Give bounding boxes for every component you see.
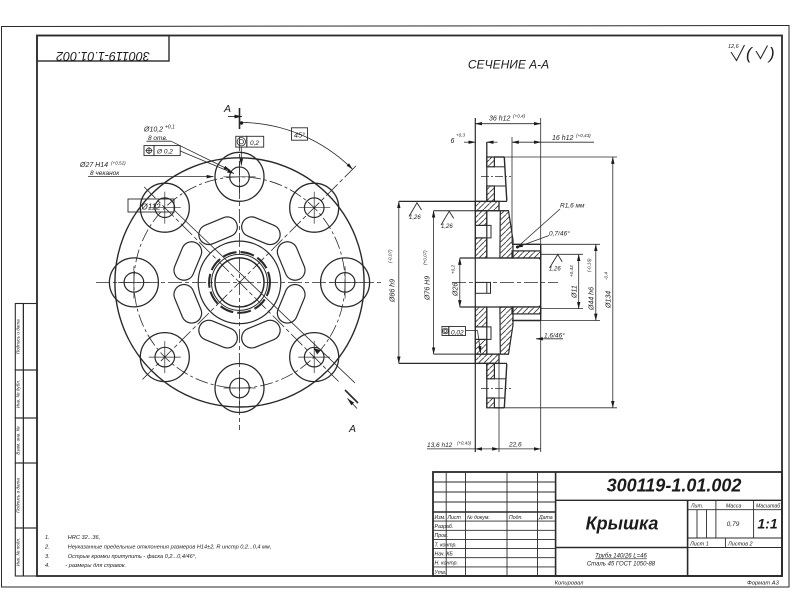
svg-text:Масштаб: Масштаб bbox=[756, 504, 781, 510]
svg-text:Формат А3: Формат А3 bbox=[747, 581, 779, 587]
svg-text:Ø26: Ø26 bbox=[453, 283, 460, 297]
svg-text:Острые кромки притупить - фаск: Острые кромки притупить - фаска 0,2...0,… bbox=[68, 554, 197, 560]
svg-text:300119-1.01.002: 300119-1.01.002 bbox=[56, 49, 150, 63]
svg-text:Подп.: Подп. bbox=[509, 515, 523, 521]
svg-text:Лист: Лист bbox=[447, 515, 462, 521]
svg-text:№ докум.: № докум. bbox=[467, 515, 490, 521]
svg-text:(+0,43): (+0,43) bbox=[457, 441, 472, 446]
svg-text:Лит.: Лит. bbox=[690, 504, 703, 510]
svg-text:Ø86 h9: Ø86 h9 bbox=[390, 279, 397, 303]
svg-text:13,6 h12: 13,6 h12 bbox=[427, 442, 453, 449]
svg-text:Ø76 Н9: Ø76 Н9 bbox=[425, 276, 432, 301]
svg-text:Дата: Дата bbox=[538, 515, 553, 521]
svg-text:1,6/46°: 1,6/46° bbox=[544, 332, 565, 340]
svg-text:0,02: 0,02 bbox=[451, 329, 464, 336]
svg-text:+0,3: +0,3 bbox=[456, 133, 466, 138]
svg-text:1,26: 1,26 bbox=[441, 224, 453, 230]
svg-text:2.: 2. bbox=[44, 545, 50, 551]
svg-text:22,6: 22,6 bbox=[508, 442, 522, 449]
svg-text:(+0,4): (+0,4) bbox=[513, 114, 526, 119]
svg-text:+0,2: +0,2 bbox=[451, 264, 456, 274]
svg-text:Листов 2: Листов 2 bbox=[727, 541, 753, 547]
svg-text:Подпись и дата: Подпись и дата bbox=[16, 478, 21, 513]
svg-text:Масса: Масса bbox=[726, 504, 741, 510]
svg-text:Ø112: Ø112 bbox=[141, 203, 162, 212]
svg-text:-0,4: -0,4 bbox=[604, 272, 609, 280]
svg-text:6: 6 bbox=[451, 138, 455, 145]
svg-text:Ø27 Н14: Ø27 Н14 bbox=[79, 162, 108, 169]
svg-text:Изм.: Изм. bbox=[435, 515, 446, 521]
svg-text:1:1: 1:1 bbox=[757, 516, 777, 532]
svg-text:Сталь 45 ГОСТ 1050-88: Сталь 45 ГОСТ 1050-88 bbox=[587, 562, 656, 568]
svg-text:Инв. № дубл.: Инв. № дубл. bbox=[16, 380, 21, 408]
svg-text:Н. контр.: Н. контр. bbox=[435, 561, 458, 567]
svg-text:0,7/46°: 0,7/46° bbox=[549, 230, 570, 238]
svg-text:(-0,07): (-0,07) bbox=[388, 249, 393, 263]
svg-text:(+0,43): (+0,43) bbox=[576, 133, 591, 138]
svg-text:НRС 32...36,: НRС 32...36, bbox=[68, 535, 100, 541]
svg-text:Ø134: Ø134 bbox=[606, 291, 613, 309]
svg-text:Ø11: Ø11 bbox=[572, 285, 579, 299]
svg-text:Ø10,2: Ø10,2 bbox=[143, 127, 163, 134]
svg-text:Ø44 h6: Ø44 h6 bbox=[589, 287, 596, 311]
svg-text:1,26: 1,26 bbox=[409, 215, 421, 221]
svg-text:Копировал: Копировал bbox=[555, 581, 585, 587]
svg-text:+0,43: +0,43 bbox=[569, 265, 574, 277]
svg-text:Крышка: Крышка bbox=[586, 514, 659, 534]
svg-text:36 h12: 36 h12 bbox=[489, 116, 511, 123]
svg-text:45°: 45° bbox=[294, 131, 305, 140]
svg-text:Труба 140/26 L=46: Труба 140/26 L=46 bbox=[595, 554, 647, 560]
svg-text:А: А bbox=[223, 103, 231, 115]
svg-text:1,26: 1,26 bbox=[549, 267, 561, 273]
svg-text:+0,1: +0,1 bbox=[165, 125, 175, 131]
svg-text:Подпись и дата: Подпись и дата bbox=[16, 319, 21, 354]
svg-text:Лист 1: Лист 1 bbox=[689, 541, 709, 547]
svg-text:16 h12: 16 h12 bbox=[552, 135, 574, 142]
svg-text:300119-1.01.002: 300119-1.01.002 bbox=[607, 476, 742, 496]
svg-text:12,6: 12,6 bbox=[728, 44, 740, 50]
svg-text:А: А bbox=[348, 423, 356, 435]
svg-text:Ø 0,2: Ø 0,2 bbox=[156, 149, 173, 156]
svg-text:Утв.: Утв. bbox=[435, 570, 447, 576]
svg-text:3.: 3. bbox=[45, 554, 50, 560]
svg-text:Т. контр.: Т. контр. bbox=[435, 542, 457, 548]
svg-text:8 чеканок: 8 чеканок bbox=[90, 170, 120, 177]
svg-text:(+0,07): (+0,07) bbox=[423, 250, 428, 265]
svg-text:1.: 1. bbox=[45, 535, 50, 541]
svg-text:Нач. КБ: Нач. КБ bbox=[435, 552, 454, 558]
svg-text:0,2: 0,2 bbox=[250, 140, 259, 147]
svg-text:4.: 4. bbox=[45, 563, 50, 569]
svg-text:0,79: 0,79 bbox=[727, 521, 740, 528]
svg-text:(-0,16): (-0,16) bbox=[587, 258, 592, 272]
svg-text:Инв. № подл.: Инв. № подл. bbox=[16, 538, 21, 567]
svg-text:Взам. инв. №: Взам. инв. № bbox=[16, 426, 21, 454]
svg-text:СЕЧЕНИЕ А-А: СЕЧЕНИЕ А-А bbox=[468, 58, 549, 72]
svg-text:Неуказанные предельные отклоне: Неуказанные предельные отклонения размер… bbox=[68, 545, 271, 551]
svg-text:Пров.: Пров. bbox=[435, 533, 449, 539]
svg-text:- размеры для справок.: - размеры для справок. bbox=[65, 563, 126, 569]
svg-text:R1,6 мм: R1,6 мм bbox=[560, 203, 585, 210]
svg-text:Разраб.: Разраб. bbox=[435, 524, 454, 530]
svg-text:): ) bbox=[767, 44, 775, 63]
svg-text:(+0,52): (+0,52) bbox=[111, 161, 126, 166]
